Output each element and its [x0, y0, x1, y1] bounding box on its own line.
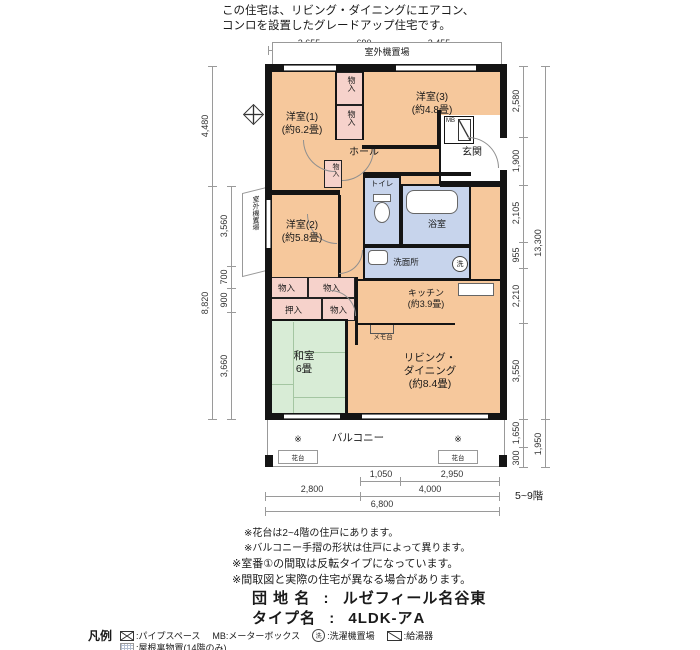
dim-tick: [227, 288, 236, 289]
wall-yo1-yo2: [265, 190, 340, 195]
dim-tick: [499, 492, 500, 501]
mb-label: MB: [446, 118, 455, 142]
outdoor-unit-space-left: 室外機置場: [242, 187, 267, 277]
wall-washitsu-right: [345, 320, 348, 413]
type-separator: :: [329, 610, 335, 627]
header-line-1: この住宅は、リビング・ダイニングにエアコン、: [222, 4, 474, 19]
washer-legend-icon: 洗: [312, 629, 325, 642]
dim-line-right-outer: [545, 66, 546, 468]
note-3: ※室番①の間取は反転タイプになっています。: [232, 555, 458, 571]
flower-stand-mark-right: ※: [454, 434, 462, 445]
label-living: リビング・ ダイニング (約8.4畳): [404, 352, 457, 391]
floors-range: 5~9階: [515, 488, 543, 503]
dim-tick: [519, 242, 528, 243]
label-memodai: メモ台: [373, 334, 393, 342]
dim-tick: [519, 268, 528, 269]
washer-symbol: 洗: [452, 256, 468, 272]
outdoor-unit-left-label: 室外機置場: [250, 195, 260, 232]
room-name: 和室: [294, 350, 315, 363]
label-bath: 浴室: [428, 219, 446, 230]
flower-stand-label: 花台: [452, 452, 465, 462]
label-yoshitsu2: 洋室(2) (約5.8畳): [282, 220, 323, 245]
estate-separator: :: [324, 590, 330, 607]
window-yo3: [396, 65, 476, 71]
room-name: 洋室(3): [412, 92, 453, 105]
dim-right-1950: 1,950: [533, 433, 543, 456]
note-2: ※バルコニー手摺の形状は住戸によって異ります。: [244, 539, 470, 554]
wall-water-top: [363, 172, 471, 176]
estate-value: ルゼフィール名谷東: [343, 590, 487, 607]
dim-tick: [519, 323, 528, 324]
balcony-corner-right: [499, 455, 507, 467]
dim-tick: [519, 467, 528, 468]
legend-wash-label: :洗濯機置場: [327, 629, 375, 642]
flower-stand-right: 花台: [438, 450, 478, 464]
dim-line-left-inner: [231, 186, 232, 420]
dim-line-right-inner: [523, 66, 524, 468]
dim-tick: [208, 66, 217, 67]
dim-tick: [360, 492, 361, 501]
room-size: (約3.9畳): [408, 299, 445, 310]
dim-tick: [519, 419, 528, 420]
dim-right-13300: 13,300: [533, 229, 543, 257]
dim-tick: [208, 419, 217, 420]
label-washitsu: 和室 6畳: [294, 350, 315, 376]
tatami-line: [293, 397, 345, 398]
dim-tick: [268, 46, 269, 55]
kitchen-counter: [458, 283, 494, 296]
legend-heater-label: :給湯器: [404, 629, 434, 642]
dim-tick: [519, 137, 528, 138]
pipe-space-legend-icon: [120, 631, 134, 641]
bathtub: [406, 190, 458, 214]
floor-plan-page: この住宅は、リビング・ダイニングにエアコン、 コンロを設置したグレードアップ住宅…: [0, 0, 700, 650]
label-balcony: バルコニー: [332, 432, 384, 445]
window-yo1: [284, 65, 336, 71]
window-washitsu: [284, 414, 340, 419]
dim-tick: [519, 66, 528, 67]
type-label: タイプ名: [252, 610, 316, 627]
outdoor-unit-space-top: 室外機置場: [272, 42, 502, 65]
window-living: [362, 414, 488, 419]
wall-kitchen-top: [358, 279, 500, 281]
estate-name-line: 団 地 名 : ルゼフィール名谷東: [252, 587, 486, 608]
toilet-tank: [373, 194, 391, 202]
dim-tick: [541, 467, 550, 468]
closet-label: 物入: [278, 282, 295, 294]
dim-tick: [541, 66, 550, 67]
dim-right-2580: 2,580: [511, 90, 521, 113]
dim-right-2210: 2,210: [511, 285, 521, 308]
washer-symbol-char: 洗: [457, 259, 464, 269]
label-genkan: 玄関: [462, 147, 482, 160]
dim-bottom-6800: 6,800: [371, 499, 394, 509]
dim-tick: [360, 477, 361, 486]
balcony-corner-left: [265, 455, 273, 467]
closet-top-1: 物入: [336, 72, 363, 105]
wall-closet-right: [362, 72, 364, 140]
room-size: (約8.4畳): [404, 378, 457, 391]
note-4: ※間取図と実際の住宅が異なる場合があります。: [232, 571, 471, 587]
dim-tick: [400, 477, 401, 486]
wall-right: [500, 64, 507, 420]
room-size: (約4.8畳): [412, 105, 453, 118]
wall-genkan-bottom: [440, 181, 500, 187]
flower-stand-mark-left: ※: [294, 434, 302, 445]
dim-bottom-1050: 1,050: [370, 469, 393, 479]
dim-right-2105: 2,105: [511, 202, 521, 225]
dim-bottom-2950: 2,950: [441, 469, 464, 479]
dim-left-700: 700: [219, 269, 229, 284]
wall-closet-left: [335, 72, 337, 140]
room-name: 洋室(2): [282, 220, 323, 233]
label-hall: ホール: [349, 147, 379, 160]
type-value: 4LDK-アA: [348, 610, 425, 627]
dim-right-300: 300: [511, 450, 521, 465]
dim-right-1650: 1,650: [511, 422, 521, 445]
dim-tick: [208, 186, 217, 187]
dim-tick: [265, 492, 266, 501]
dim-tick: [227, 266, 236, 267]
wall-washitsu-top: [265, 319, 348, 321]
closet-oshiire: 押入: [265, 298, 322, 321]
window-yo2: [266, 200, 271, 248]
closet-top-2: 物入: [336, 105, 363, 140]
label-toilet: トイレ: [371, 179, 394, 188]
toilet-bowl: [374, 202, 390, 223]
type-name-line: タイプ名 : 4LDK-アA: [252, 607, 425, 628]
estate-label: 団 地 名: [252, 590, 310, 607]
room-name: ダイニング: [404, 365, 457, 378]
dim-line-left-outer: [212, 66, 213, 420]
header-note: この住宅は、リビング・ダイニングにエアコン、 コンロを設置したグレードアップ住宅…: [222, 4, 474, 34]
pipe-space-icon: [243, 104, 264, 125]
flower-stand-left: 花台: [278, 450, 318, 464]
dim-tick: [499, 507, 500, 516]
legend-row-2: :屋根裏物置(14階のみ): [120, 641, 227, 650]
washer-legend-char: 洗: [316, 631, 322, 640]
legend-title: 凡例: [88, 627, 112, 644]
dim-line-bottom-2: [265, 496, 500, 497]
dim-left-3660: 3,660: [219, 355, 229, 378]
legend-attic-label: :屋根裏物置(14階のみ): [136, 641, 227, 650]
dim-tick: [519, 447, 528, 448]
heater-legend-icon: [387, 631, 402, 641]
dim-tick: [265, 507, 266, 516]
oshiire-label: 押入: [285, 304, 302, 316]
wash-basin: [368, 250, 388, 265]
header-line-2: コンロを設置したグレードアップ住宅です。: [222, 19, 474, 34]
dim-tick: [519, 185, 528, 186]
entrance-door-gap: [500, 138, 507, 170]
room-name: リビング・: [404, 352, 457, 365]
closet-label: 物入: [346, 110, 357, 126]
dim-tick: [499, 477, 500, 486]
dim-tick: [227, 312, 236, 313]
label-yoshitsu1: 洋室(1) (約6.2畳): [282, 112, 323, 137]
room-size: (約5.8畳): [282, 233, 323, 246]
room-size: 6畳: [294, 363, 315, 376]
memo-counter: [370, 325, 394, 334]
room-size: (約6.2畳): [282, 125, 323, 138]
dim-tick: [227, 186, 236, 187]
dim-line-bottom-1: [360, 481, 500, 482]
label-washroom: 洗面所: [393, 257, 419, 268]
dim-right-3550: 3,550: [511, 360, 521, 383]
dim-left-900: 900: [219, 292, 229, 307]
dim-bottom-2800: 2,800: [301, 484, 324, 494]
closet-label: 物入: [346, 76, 357, 92]
flower-stand-label: 花台: [292, 452, 305, 462]
dim-right-1900: 1,900: [511, 150, 521, 173]
note-1: ※花台は2~4階の住戸にあります。: [244, 524, 398, 539]
room-name: キッチン: [408, 288, 445, 299]
attic-legend-icon: [120, 643, 134, 650]
dim-tick: [541, 419, 550, 420]
dim-left-8820: 8,820: [200, 292, 210, 315]
outdoor-unit-top-label: 室外機置場: [364, 47, 409, 58]
dim-left-3560: 3,560: [219, 215, 229, 238]
label-yoshitsu3: 洋室(3) (約4.8畳): [412, 92, 453, 117]
dim-tick: [227, 419, 236, 420]
dim-right-955: 955: [511, 247, 521, 262]
dim-left-4480: 4,480: [200, 115, 210, 138]
dim-line-bottom-3: [265, 511, 500, 512]
dim-bottom-4000: 4,000: [419, 484, 442, 494]
label-kitchen: キッチン (約3.9畳): [408, 288, 445, 311]
room-name: 洋室(1): [282, 112, 323, 125]
